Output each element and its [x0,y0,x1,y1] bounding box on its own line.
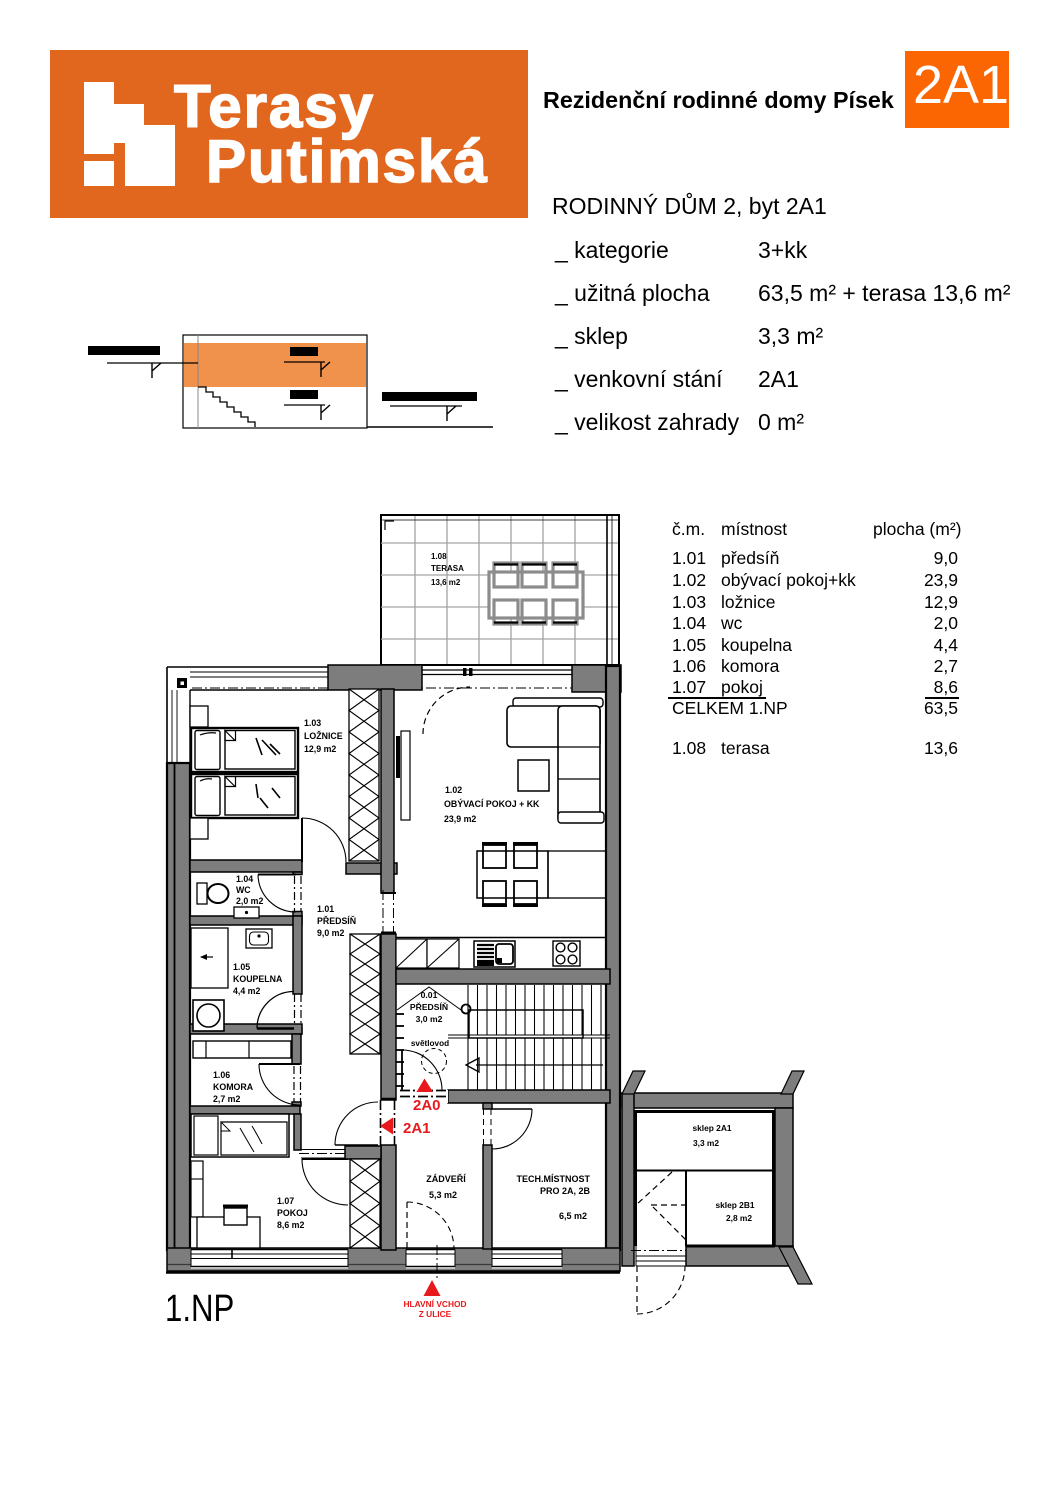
svg-text:1.07: 1.07 [277,1196,294,1206]
svg-text:2A0: 2A0 [413,1097,441,1114]
svg-text:TECH.MÍSTNOST: TECH.MÍSTNOST [517,1174,591,1184]
svg-text:4,4 m2: 4,4 m2 [233,986,260,996]
svg-text:HLAVNÍ VCHOD: HLAVNÍ VCHOD [403,1298,466,1309]
svg-text:Z ULICE: Z ULICE [419,1309,452,1319]
svg-text:8,6 m2: 8,6 m2 [277,1220,304,1230]
svg-text:1.04: 1.04 [236,874,253,884]
svg-text:2,8 m2: 2,8 m2 [726,1213,752,1223]
svg-text:LOŽNICE: LOŽNICE [304,730,343,741]
svg-text:ZÁDVEŘÍ: ZÁDVEŘÍ [426,1173,466,1184]
svg-text:3,0 m2: 3,0 m2 [416,1014,443,1024]
svg-text:1.05: 1.05 [233,962,250,972]
svg-text:2A1: 2A1 [403,1120,431,1137]
svg-text:2,0 m2: 2,0 m2 [236,896,263,906]
svg-text:WC: WC [236,885,251,895]
svg-text:12,9 m2: 12,9 m2 [304,744,336,754]
svg-text:sklep 2B1: sklep 2B1 [715,1200,754,1210]
svg-text:POKOJ: POKOJ [277,1208,308,1218]
svg-text:TERASA: TERASA [431,564,464,573]
svg-text:1.03: 1.03 [304,718,321,728]
svg-text:OBÝVACÍ POKOJ + KK: OBÝVACÍ POKOJ + KK [444,798,540,809]
svg-text:PŘEDSÍŇ: PŘEDSÍŇ [317,915,356,926]
svg-text:1.01: 1.01 [317,904,334,914]
svg-text:PRO 2A, 2B: PRO 2A, 2B [540,1186,591,1196]
svg-text:světlovod: světlovod [411,1039,449,1048]
svg-text:KOUPELNA: KOUPELNA [233,974,283,984]
svg-text:2,7 m2: 2,7 m2 [213,1094,240,1104]
svg-text:5,3 m2: 5,3 m2 [429,1190,457,1200]
svg-text:23,9 m2: 23,9 m2 [444,814,476,824]
svg-text:9,0 m2: 9,0 m2 [317,928,344,938]
svg-text:1.02: 1.02 [445,785,462,795]
svg-text:PŘEDSÍŇ: PŘEDSÍŇ [410,1001,448,1012]
svg-text:3,3 m2: 3,3 m2 [693,1138,719,1148]
svg-text:0.01: 0.01 [421,990,438,1000]
svg-text:13,6 m2: 13,6 m2 [431,578,461,587]
svg-text:1.06: 1.06 [213,1070,230,1080]
svg-text:1.08: 1.08 [431,552,447,561]
svg-text:KOMORA: KOMORA [213,1082,254,1092]
svg-text:sklep 2A1: sklep 2A1 [692,1123,731,1133]
svg-text:6,5 m2: 6,5 m2 [559,1211,587,1221]
